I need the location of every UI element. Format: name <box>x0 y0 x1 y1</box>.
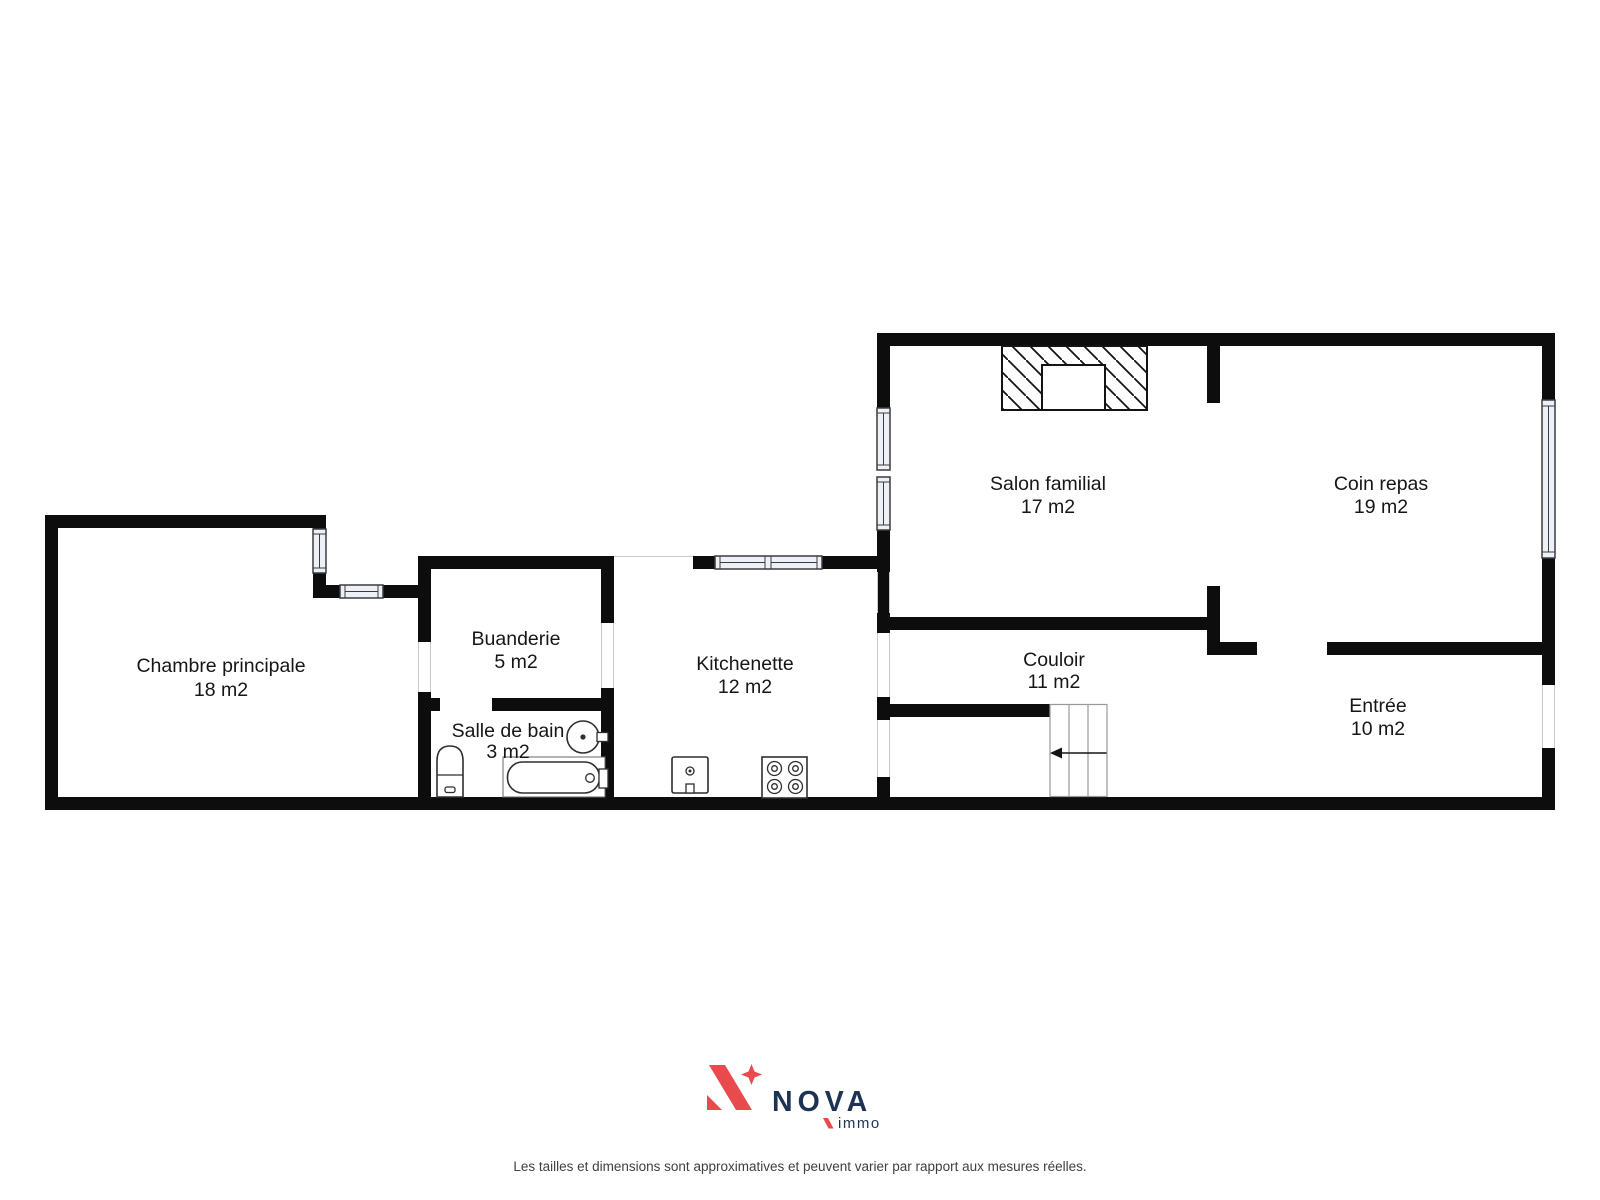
kitchen-sink <box>672 757 708 793</box>
room-label-coin-repas: Coin repas <box>1334 473 1429 495</box>
window-salon-lower <box>877 477 890 530</box>
logo-n-diagonal <box>709 1065 752 1110</box>
brand-subtitle: immo <box>838 1115 881 1132</box>
room-area-salle-de-bain: 3 m2 <box>486 741 529 763</box>
kitchen-fixtures <box>672 757 807 798</box>
toilet <box>437 746 463 797</box>
window-coin-repas <box>1542 400 1555 558</box>
window-chambre-step <box>340 585 383 598</box>
brand-logo: NOVA immo <box>707 1064 881 1132</box>
stairs-direction-arrow <box>1050 748 1062 759</box>
room-label-salon-familial: Salon familial <box>990 473 1106 495</box>
walls <box>45 333 1555 810</box>
logo-immo-tick <box>823 1118 834 1129</box>
room-label-chambre-principale: Chambre principale <box>136 655 305 677</box>
bathtub <box>503 757 608 797</box>
stairs <box>1050 705 1107 797</box>
logo-n-triangle <box>707 1095 722 1110</box>
room-area-salon-familial: 17 m2 <box>1021 496 1075 518</box>
room-label-salle-de-bain: Salle de bain <box>452 720 565 742</box>
floor-plan: Chambre principale 18 m2 Buanderie 5 m2 … <box>0 0 1600 1200</box>
room-area-chambre-principale: 18 m2 <box>194 679 248 701</box>
room-labels: Chambre principale 18 m2 Buanderie 5 m2 … <box>136 473 1428 763</box>
room-area-buanderie: 5 m2 <box>494 651 537 673</box>
room-label-couloir: Couloir <box>1023 649 1085 671</box>
room-area-couloir: 11 m2 <box>1028 671 1081 693</box>
brand-name: NOVA <box>772 1086 872 1118</box>
room-label-buanderie: Buanderie <box>472 628 561 650</box>
stove <box>762 757 807 798</box>
logo-sparkle-icon <box>741 1064 762 1085</box>
window-salon-upper <box>877 408 890 470</box>
fireplace <box>1002 346 1147 410</box>
room-area-entree: 10 m2 <box>1351 718 1405 740</box>
window-kitchenette <box>715 556 822 569</box>
window-chambre-side <box>313 529 326 573</box>
room-area-kitchenette: 12 m2 <box>718 676 772 698</box>
room-label-kitchenette: Kitchenette <box>696 653 794 675</box>
room-label-entree: Entrée <box>1349 695 1406 717</box>
disclaimer-text: Les tailles et dimensions sont approxima… <box>513 1159 1086 1174</box>
room-area-coin-repas: 19 m2 <box>1354 496 1408 518</box>
floor-plan-page: Chambre principale 18 m2 Buanderie 5 m2 … <box>0 0 1600 1200</box>
